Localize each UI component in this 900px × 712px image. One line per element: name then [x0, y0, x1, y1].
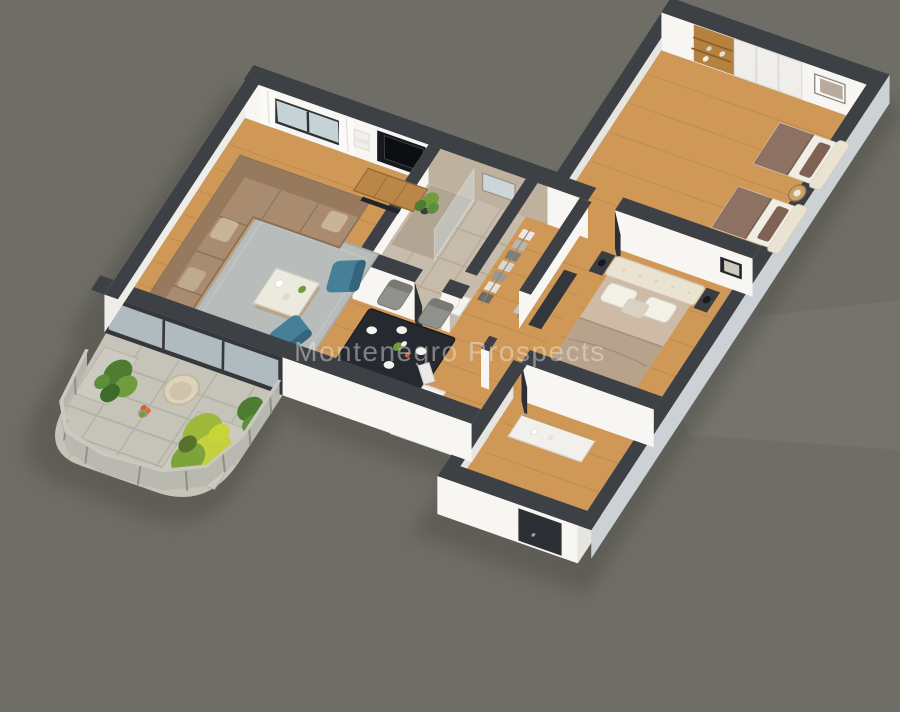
floor-plan-render: Montenegro Prospects	[0, 0, 900, 712]
floor-plan-canvas	[0, 0, 900, 712]
